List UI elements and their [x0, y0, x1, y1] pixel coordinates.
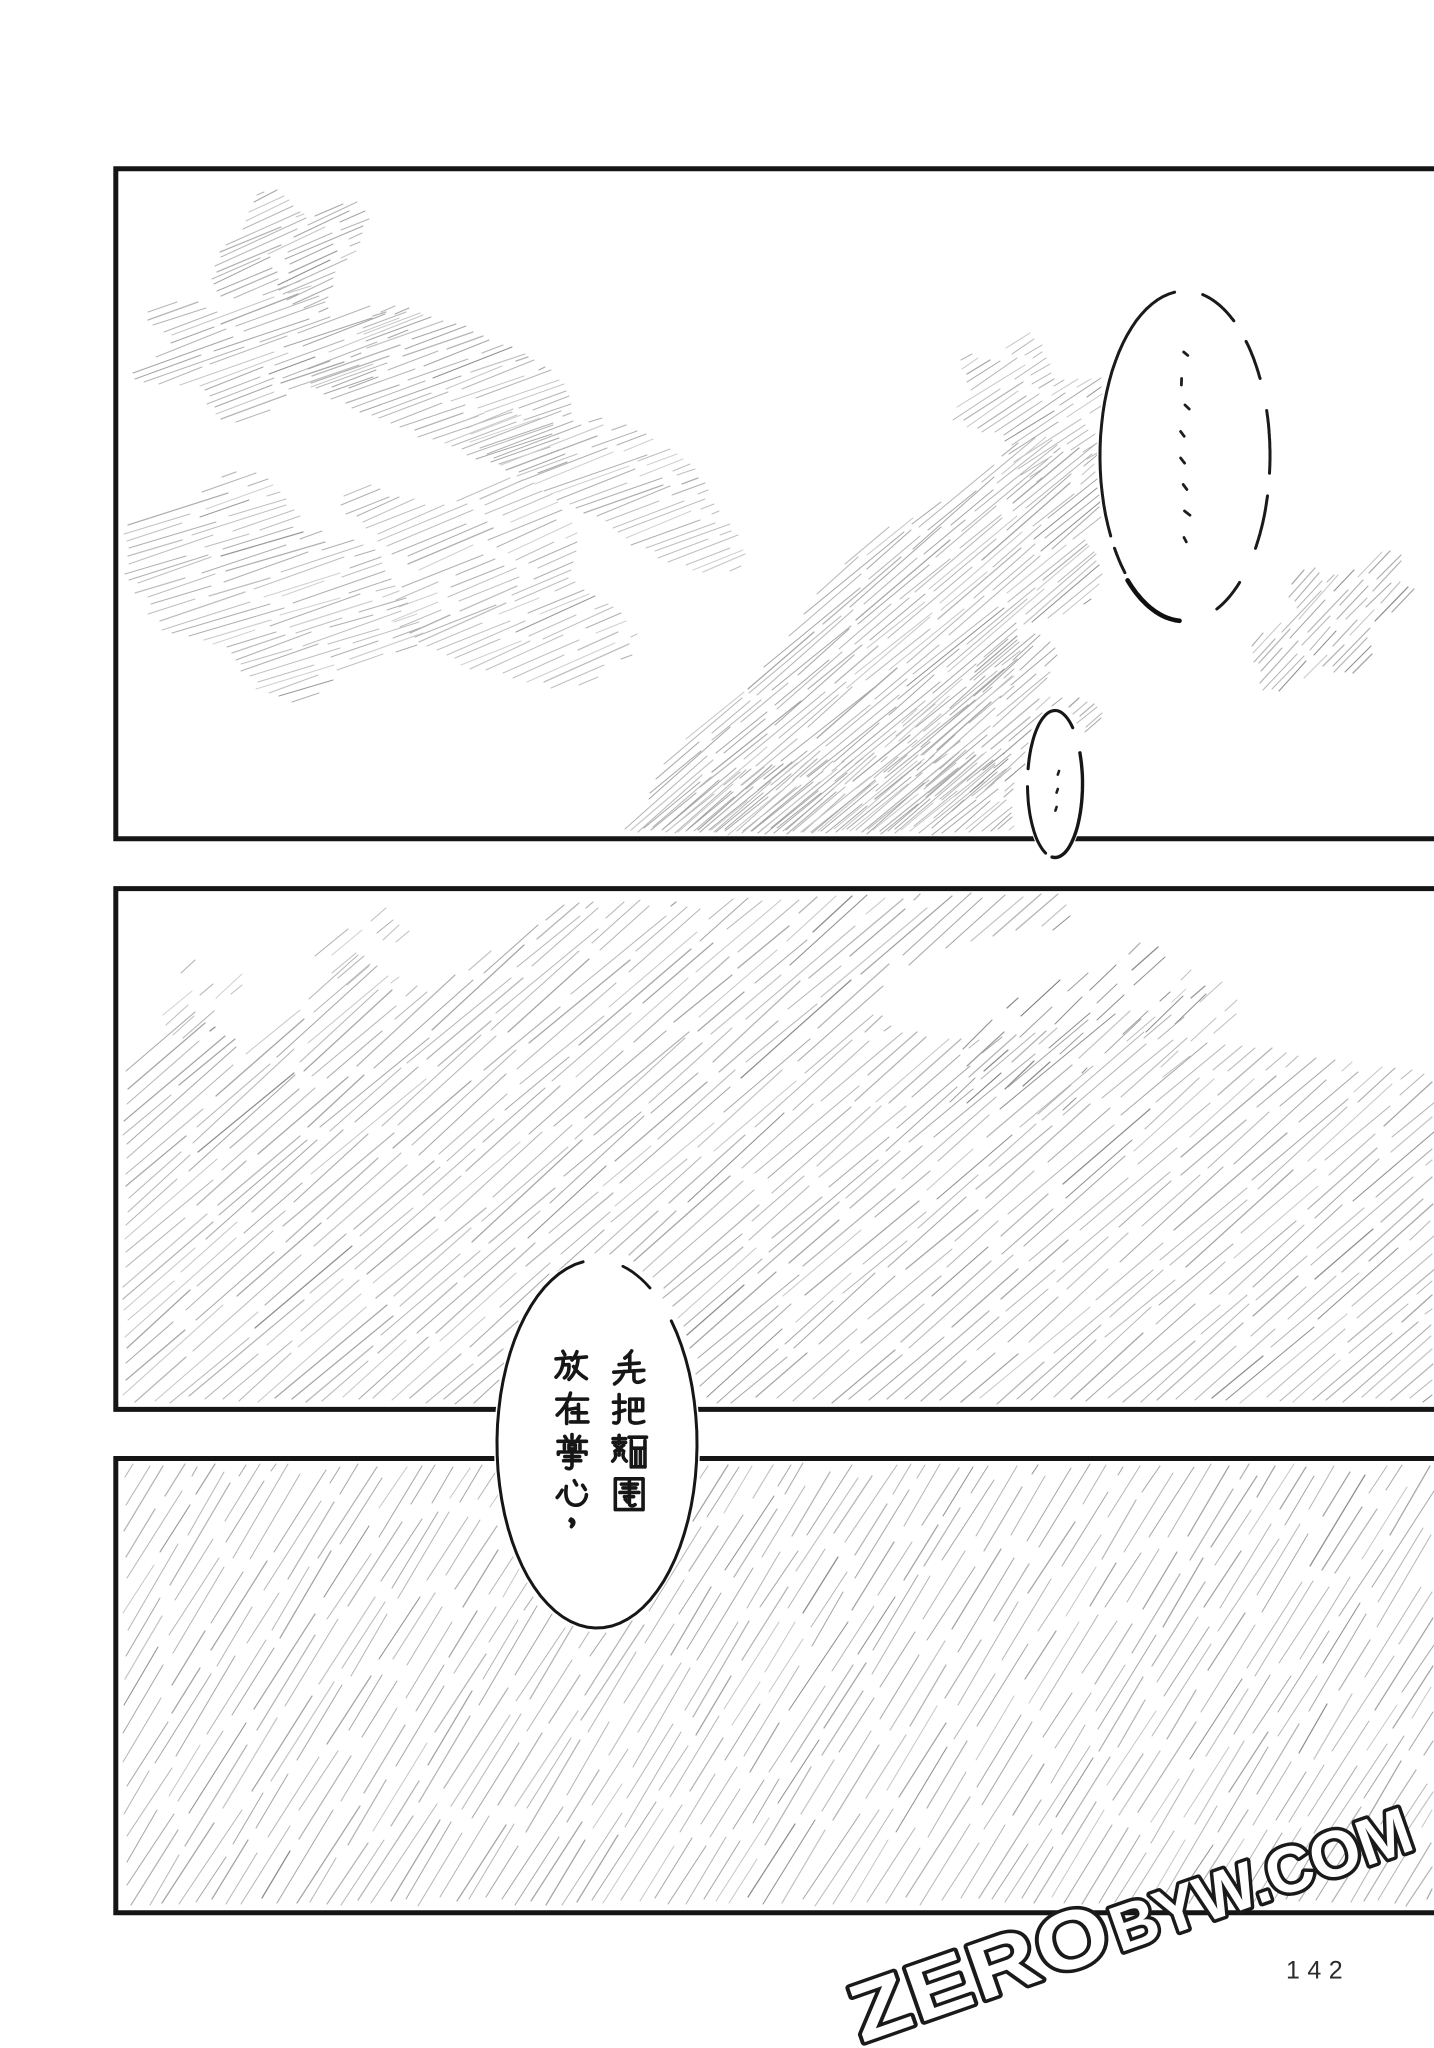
svg-text:142: 142	[1286, 1957, 1350, 1985]
